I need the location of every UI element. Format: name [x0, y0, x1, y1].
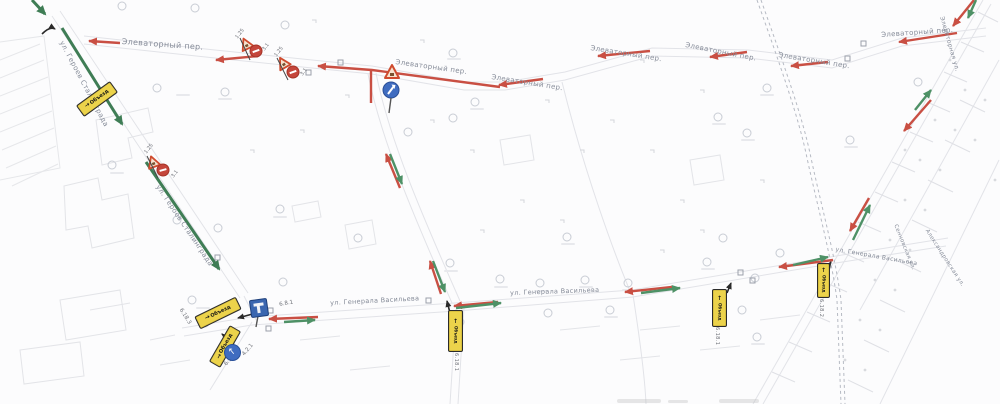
base-map-parcel-lines	[772, 12, 998, 392]
sign-code-detour-1: 6.18.1	[714, 327, 719, 345]
base-map-hatch-area	[0, 36, 60, 186]
temporary-signs	[145, 36, 399, 327]
detour-plate-sign: ↑ Объезд	[712, 289, 727, 327]
traffic-detour-scheme-map: Элеваторный пер. Элеваторный пер. Элеват…	[0, 0, 1000, 404]
base-map-streets	[52, 0, 999, 404]
detour-plate-sign: ↑ Объезд	[817, 263, 830, 298]
mandatory-direction-sign-icon	[383, 82, 399, 98]
sign-code-detour-1: 6.18.1	[453, 353, 458, 371]
mandatory-direction-sign-icon: ↑	[224, 344, 241, 361]
map-canvas	[0, 0, 1000, 404]
base-map-corner-marks	[250, 20, 764, 253]
detour-plate-text: Объезд	[822, 275, 826, 292]
cutoff-caption-smudge	[719, 399, 759, 403]
detour-plate-arrow-icon: ↑	[821, 268, 826, 274]
sign-code-detour-2: 6.18.2	[818, 299, 823, 317]
detour-plate-arrow-icon: ↑	[453, 319, 458, 325]
detour-plate-sign: ↑ Объезд	[448, 310, 463, 352]
cutoff-caption-smudge	[617, 399, 661, 403]
detour-plate-text: Объезд	[454, 326, 458, 343]
detour-plate-text: Объезд	[718, 303, 722, 320]
detour-plate-arrow-icon: ↑	[717, 296, 722, 302]
base-map-buildings	[20, 108, 800, 384]
white-arrow-icon: ↑	[227, 347, 239, 359]
dead-end-sign-icon	[249, 298, 269, 318]
cutoff-caption-smudge	[668, 400, 688, 403]
